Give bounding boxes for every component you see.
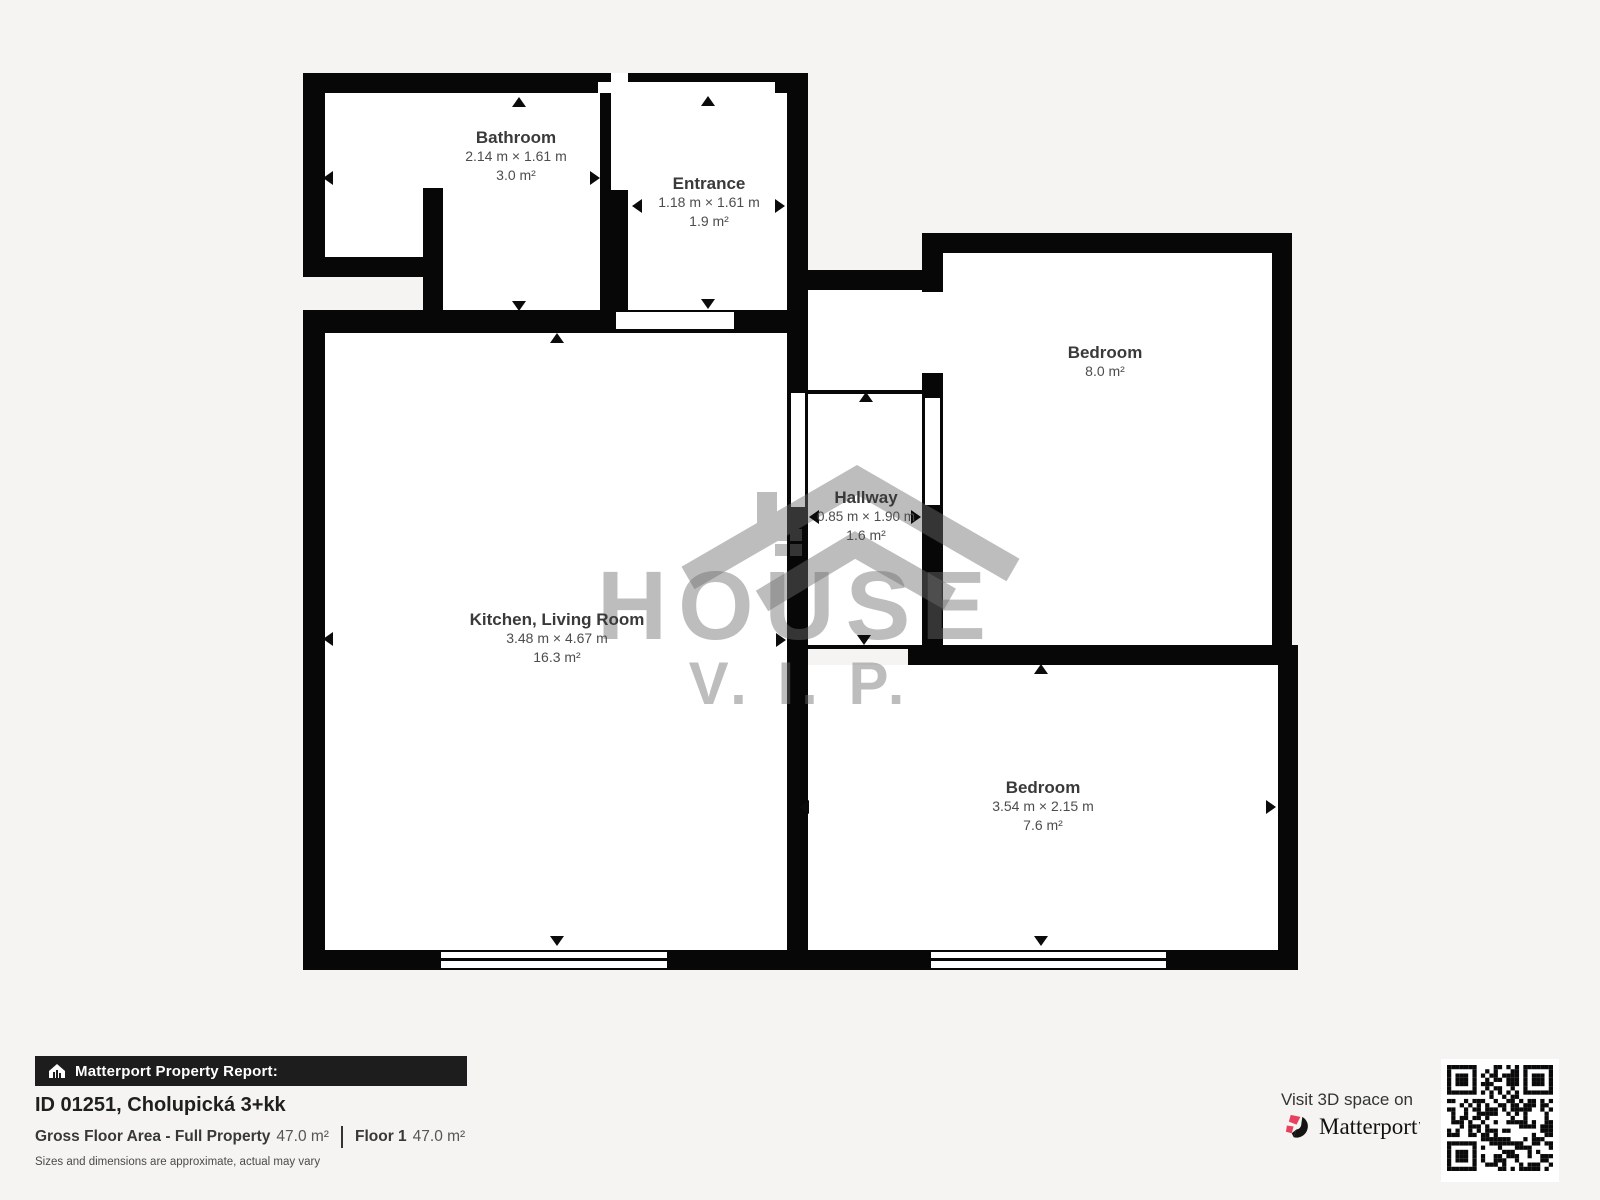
window: [441, 952, 667, 968]
room-label-bedroom-top: Bedroom 8.0 m²: [1068, 343, 1143, 381]
wall-segment: [423, 188, 443, 310]
visit-3d-text: Visit 3D space on: [1281, 1090, 1413, 1110]
property-title: ID 01251, Cholupická 3+kk: [35, 1094, 286, 1117]
room-name: Bedroom: [992, 778, 1094, 797]
matterport-wordmark: Matterport: [1319, 1114, 1417, 1140]
dimension-arrow-up-icon: [512, 97, 526, 107]
gfa-label: Gross Floor Area - Full Property: [35, 1128, 270, 1146]
report-header-bar: Matterport Property Report:: [35, 1056, 467, 1086]
page: HOUSE V. I. P. Bathroom 2.14 m × 1.61 m …: [0, 0, 1600, 1200]
room-name: Hallway: [817, 488, 915, 507]
dimension-arrow-down-icon: [857, 635, 871, 645]
room-name: Bedroom: [1068, 343, 1143, 362]
room-label-kitchen-living: Kitchen, Living Room 3.48 m × 4.67 m 16.…: [470, 610, 645, 667]
wall-segment: [303, 257, 443, 277]
floor-area-stats: Gross Floor Area - Full Property 47.0 m²…: [35, 1126, 465, 1148]
room-area: 8.0 m²: [1068, 362, 1143, 381]
dimension-arrow-up-icon: [701, 96, 715, 106]
room-area: 3.0 m²: [465, 166, 567, 185]
dimension-arrow-up-icon: [1034, 664, 1048, 674]
room-area: 1.6 m²: [817, 526, 915, 545]
gfa-value: 47.0 m²: [276, 1128, 329, 1146]
dimension-arrow-down-icon: [1034, 936, 1048, 946]
room-area: 1.9 m²: [658, 212, 760, 231]
room-dimensions: 0.85 m × 1.90 m: [817, 507, 915, 526]
qr-code[interactable]: [1441, 1059, 1559, 1182]
door-leaf: [611, 73, 628, 190]
wall-segment: [922, 233, 1290, 253]
room-label-entrance: Entrance 1.18 m × 1.61 m 1.9 m²: [658, 174, 760, 231]
room-dimensions: 3.48 m × 4.67 m: [470, 629, 645, 648]
matterport-brand-link[interactable]: Matterport ’: [1284, 1113, 1421, 1140]
room-dimensions: 2.14 m × 1.61 m: [465, 147, 567, 166]
room-name: Entrance: [658, 174, 760, 193]
room-dimensions: 1.18 m × 1.61 m: [658, 193, 760, 212]
dimension-arrow-left-icon: [323, 632, 333, 646]
room-label-hallway: Hallway 0.85 m × 1.90 m 1.6 m²: [817, 488, 915, 545]
dimension-arrow-down-icon: [701, 299, 715, 309]
room-label-bedroom-bottom: Bedroom 3.54 m × 2.15 m 7.6 m²: [992, 778, 1094, 835]
room-area: 16.3 m²: [470, 648, 645, 667]
room-corridor: [808, 290, 943, 374]
matterport-logo-icon: [1284, 1113, 1311, 1140]
floor-label: Floor 1: [355, 1128, 407, 1146]
dimension-arrow-left-icon: [632, 199, 642, 213]
dimension-arrow-right-icon: [775, 199, 785, 213]
door-opening: [808, 373, 922, 390]
dimension-arrow-up-icon: [550, 333, 564, 343]
watermark-subtitle: V. I. P.: [689, 652, 912, 716]
report-bar-label: Matterport Property Report:: [75, 1063, 278, 1080]
dimension-arrow-left-icon: [323, 171, 333, 185]
watermark-title: HOUSE: [597, 556, 997, 656]
dimension-arrow-down-icon: [512, 301, 526, 311]
dimension-arrow-right-icon: [590, 171, 600, 185]
room-dimensions: 3.54 m × 2.15 m: [992, 797, 1094, 816]
dimension-arrow-down-icon: [550, 936, 564, 946]
window: [931, 952, 1166, 968]
matterport-trademark: ’: [1418, 1121, 1420, 1132]
dimension-arrow-left-icon: [799, 800, 809, 814]
stats-divider: [341, 1126, 343, 1148]
room-name: Kitchen, Living Room: [470, 610, 645, 629]
dimension-arrow-right-icon: [1266, 800, 1276, 814]
disclaimer-text: Sizes and dimensions are approximate, ac…: [35, 1156, 320, 1168]
wall-segment: [303, 73, 325, 277]
room-label-bathroom: Bathroom 2.14 m × 1.61 m 3.0 m²: [465, 128, 567, 185]
dimension-arrow-right-icon: [776, 633, 786, 647]
wall-segment: [303, 310, 325, 970]
room-area: 7.6 m²: [992, 816, 1094, 835]
room-name: Bathroom: [465, 128, 567, 147]
floor-value: 47.0 m²: [413, 1128, 466, 1146]
wall-segment: [1272, 233, 1292, 665]
door-opening: [616, 312, 734, 329]
dimension-arrow-up-icon: [859, 392, 873, 402]
house-report-icon: [48, 1063, 66, 1079]
wall-segment: [1278, 645, 1298, 970]
